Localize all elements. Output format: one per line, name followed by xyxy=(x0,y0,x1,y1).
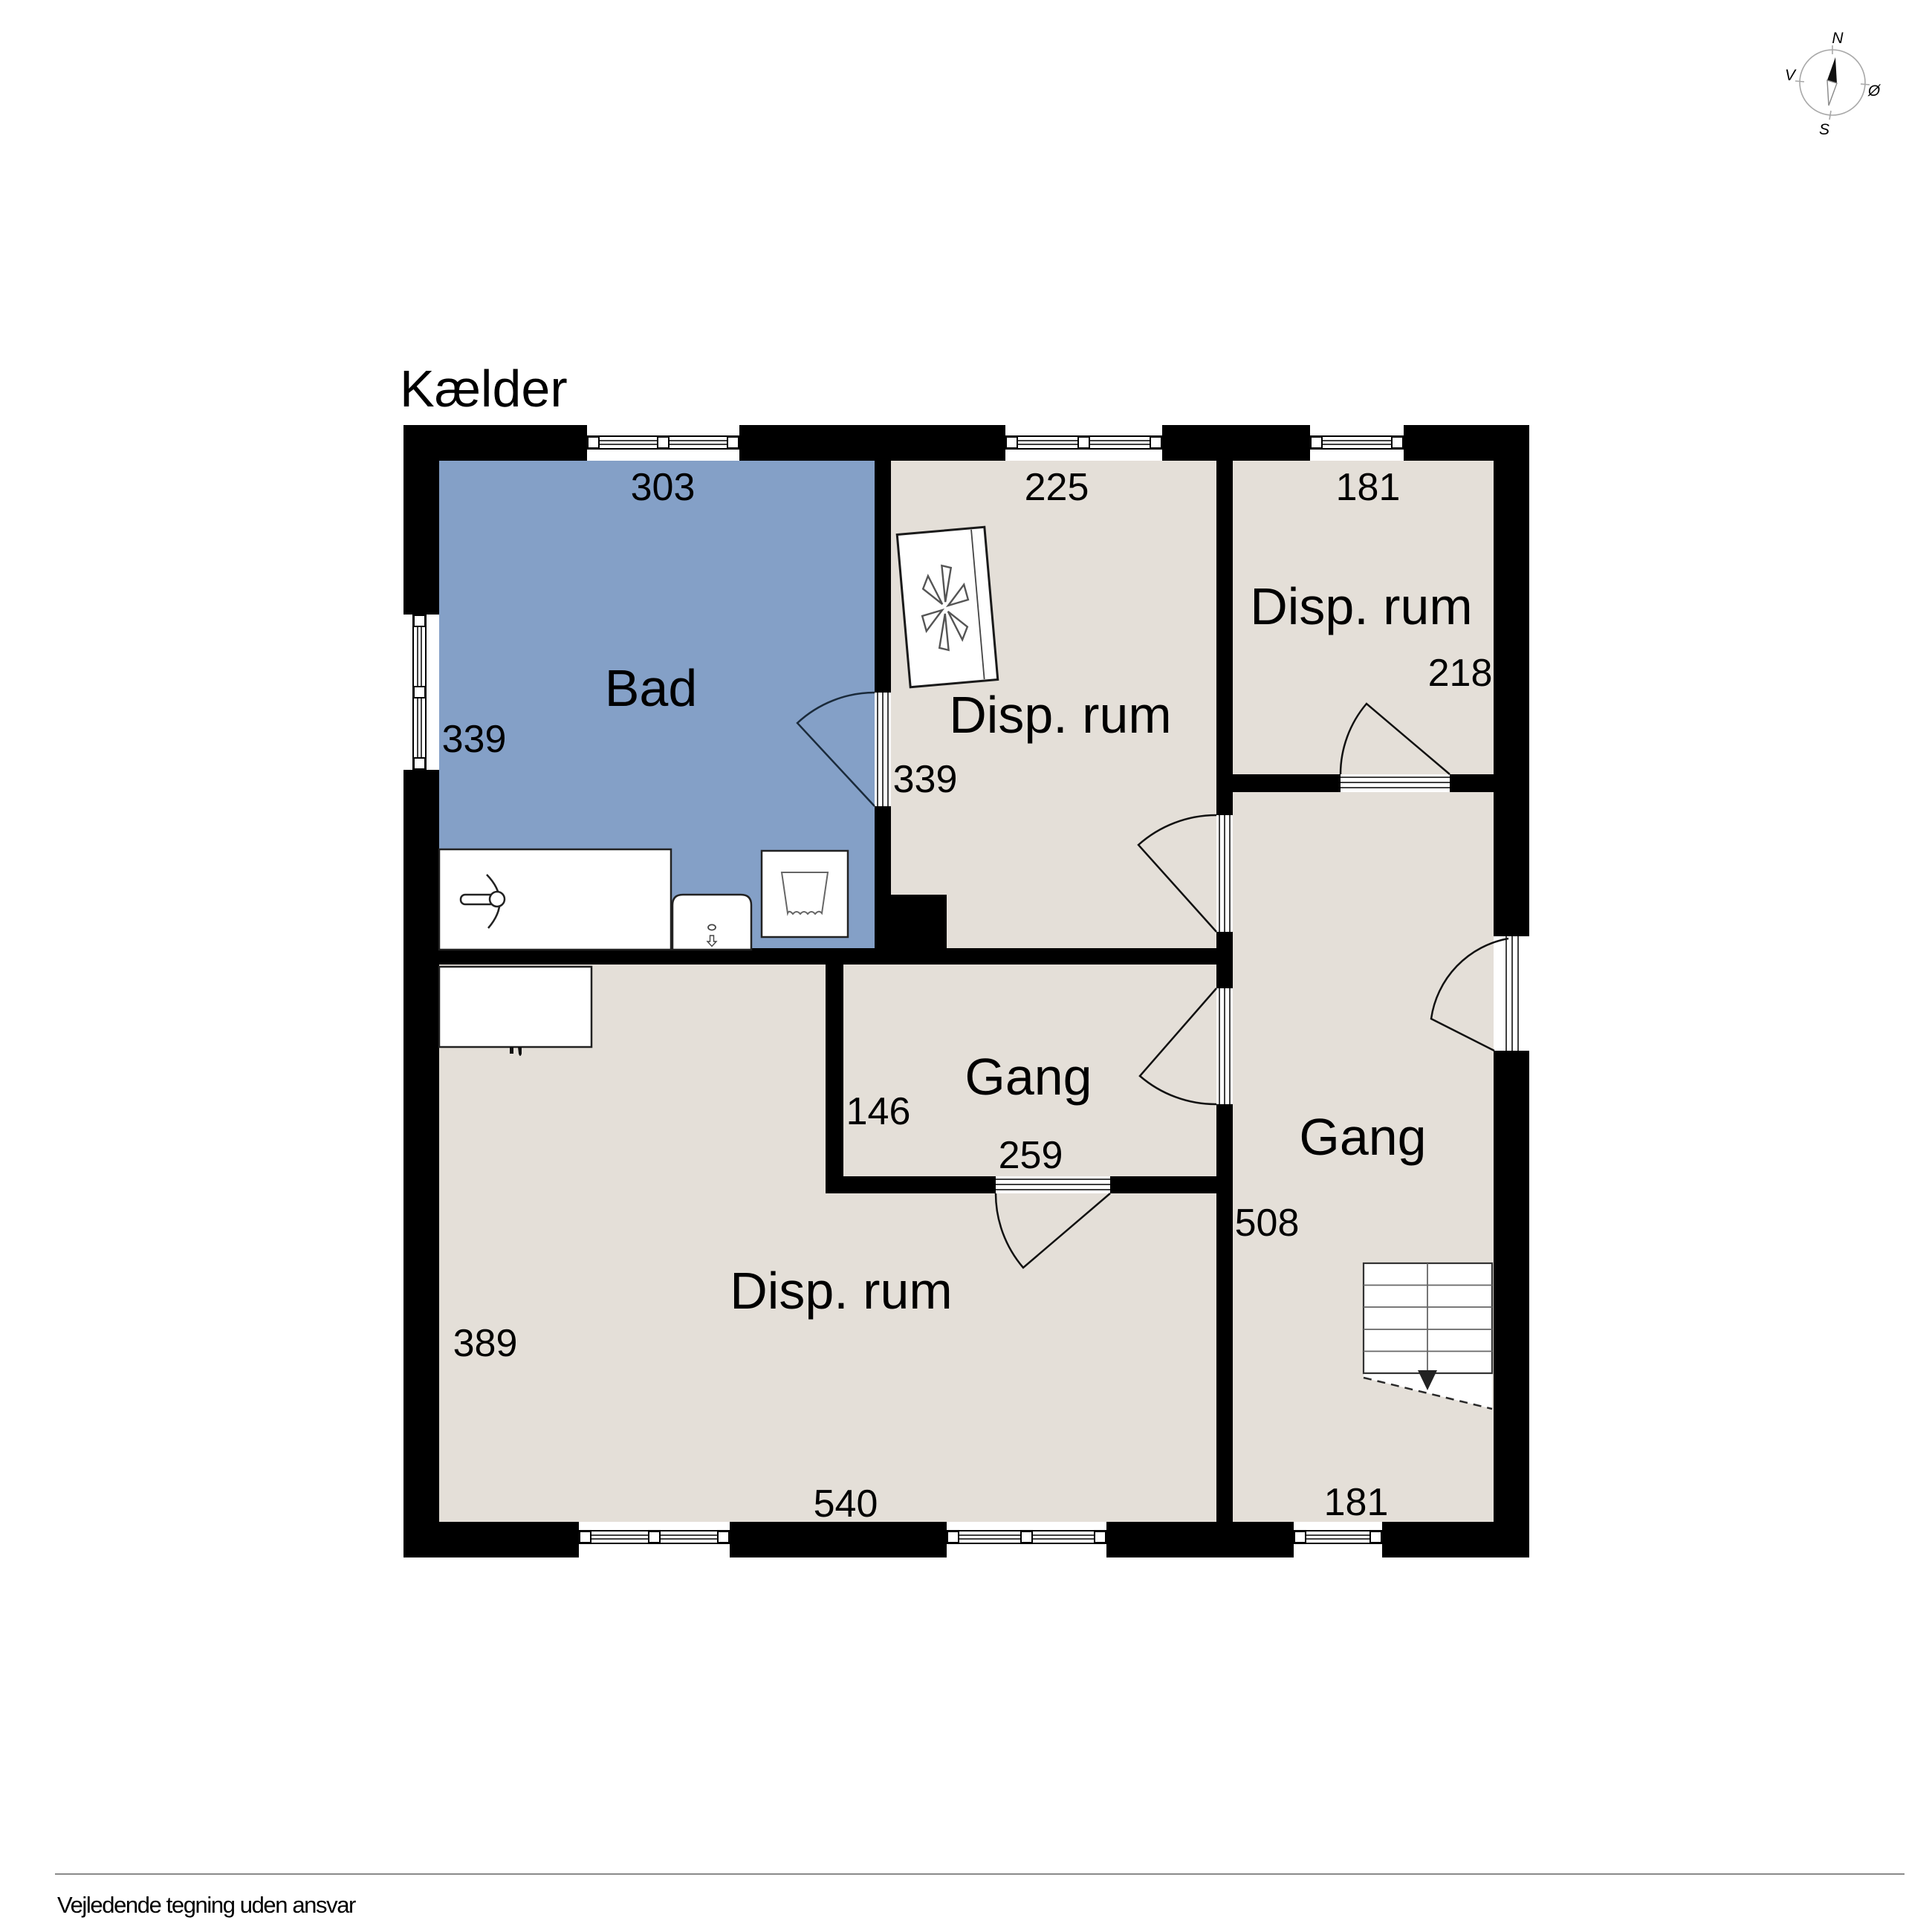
svg-text:218: 218 xyxy=(1428,652,1493,695)
svg-text:181: 181 xyxy=(1336,466,1401,509)
svg-text:339: 339 xyxy=(442,718,507,761)
svg-text:Bad: Bad xyxy=(605,659,698,717)
svg-text:N: N xyxy=(1832,30,1844,47)
svg-text:540: 540 xyxy=(814,1482,878,1526)
svg-text:Gang: Gang xyxy=(965,1048,1092,1106)
svg-text:Gang: Gang xyxy=(1299,1108,1426,1166)
svg-text:Disp. rum: Disp. rum xyxy=(949,686,1171,744)
svg-text:389: 389 xyxy=(453,1322,518,1365)
svg-text:S: S xyxy=(1819,121,1829,138)
svg-text:Disp. rum: Disp. rum xyxy=(1250,577,1472,635)
svg-text:V: V xyxy=(1785,67,1797,84)
svg-text:Ø: Ø xyxy=(1867,82,1881,100)
svg-text:508: 508 xyxy=(1235,1202,1300,1245)
svg-text:303: 303 xyxy=(631,466,696,509)
svg-text:Vejledende tegning uden ansvar: Vejledende tegning uden ansvar xyxy=(57,1892,356,1918)
svg-text:225: 225 xyxy=(1025,466,1089,509)
svg-text:259: 259 xyxy=(999,1134,1063,1177)
svg-text:181: 181 xyxy=(1324,1481,1389,1524)
svg-text:339: 339 xyxy=(893,758,958,801)
svg-text:146: 146 xyxy=(846,1090,911,1133)
svg-text:Kælder: Kælder xyxy=(400,360,568,418)
svg-text:Disp. rum: Disp. rum xyxy=(730,1262,952,1320)
